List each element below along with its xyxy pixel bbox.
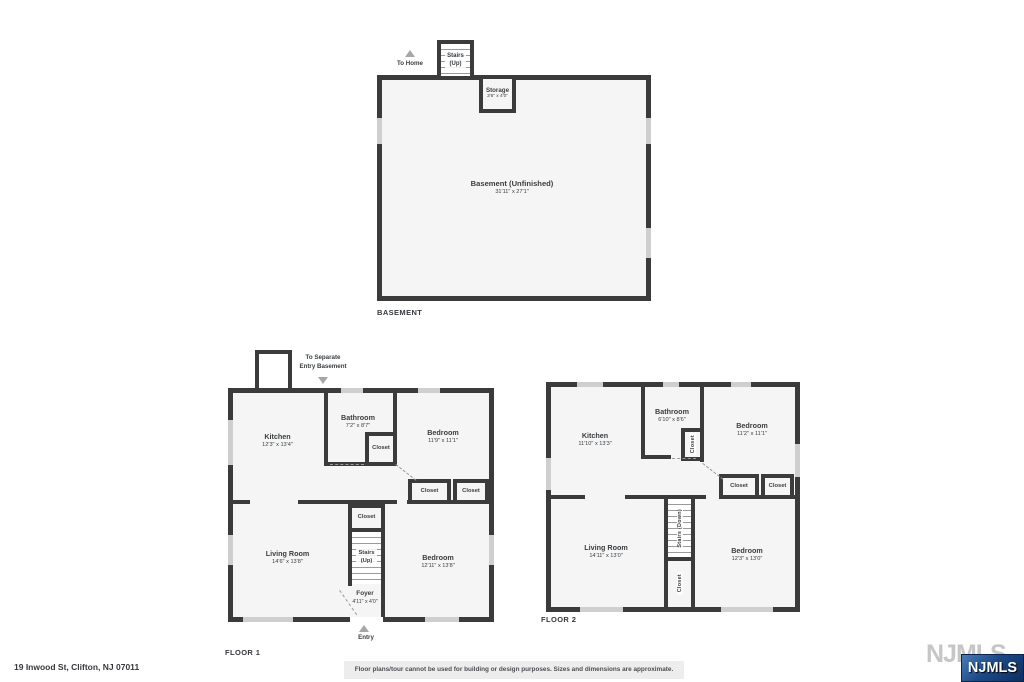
window [418, 388, 440, 393]
window [646, 228, 651, 258]
room-label-bedroom: Bedroom 11'2" x 11'1" [712, 421, 792, 438]
bedroom-dims: 11'9" x 11'1" [403, 438, 483, 445]
entry-label: Entry [344, 634, 388, 643]
closet-label: Closet [730, 484, 748, 490]
bedroom-name: Bedroom [403, 428, 483, 438]
door-opening [397, 500, 407, 504]
room-label-bedroom: Bedroom 11'9" x 11'1" [403, 428, 483, 445]
closet-box: Closet [453, 479, 489, 504]
room-label-bathroom: Bathroom 6'10" x 8'6" [637, 407, 707, 424]
window [228, 535, 233, 565]
entry-opening [350, 617, 383, 622]
window [546, 458, 551, 490]
floor1-stairs: Stairs (Up) [352, 532, 381, 584]
floorplan-page: Stairs (Up) To Home Storage 3'6" x 4'0" … [0, 0, 1024, 682]
living-room-dims: 14'11" x 13'0" [563, 553, 649, 560]
room-label-kitchen: Kitchen 11'10" x 13'3" [557, 431, 633, 448]
bedroom-dims: 12'11" x 13'8" [393, 563, 483, 570]
door-opening [706, 495, 720, 499]
window [228, 420, 233, 465]
window [489, 535, 494, 565]
basement-title: BASEMENT [377, 308, 422, 317]
bedroom-dims: 11'2" x 11'1" [712, 431, 792, 438]
floor1-title: FLOOR 1 [225, 648, 260, 657]
bedroom-name: Bedroom [712, 421, 792, 431]
door-swing [330, 464, 364, 465]
window [377, 118, 382, 144]
closet-label: Closet [769, 484, 787, 490]
to-home-arrow-icon [405, 50, 415, 57]
window [341, 388, 363, 393]
disclaimer-text: Floor plans/tour cannot be used for buil… [344, 661, 684, 679]
bathroom-dims: 7'2" x 8'7" [323, 423, 393, 430]
window [580, 607, 623, 612]
floor2-stairs: Stairs (Down) [668, 499, 691, 557]
foyer-dims: 4'11" x 4'0" [335, 599, 395, 606]
living-room-name: Living Room [563, 543, 649, 553]
closet-box: Closet [408, 479, 451, 504]
bedroom-dims: 12'3" x 13'0" [702, 556, 792, 563]
living-room-name: Living Room [245, 549, 330, 559]
room-label-basement: Basement (Unfinished) 31'11" x 27'1" [432, 179, 592, 197]
closet-box: Closet [681, 428, 704, 461]
window [577, 382, 603, 387]
wall [691, 495, 695, 607]
room-label-foyer: Foyer 4'11" x 4'0" [335, 590, 395, 605]
room-label-bathroom: Bathroom 7'2" x 8'7" [323, 413, 393, 430]
storage-dims: 3'6" x 4'0" [487, 95, 508, 100]
closet-label: Closet [358, 515, 376, 521]
window [795, 444, 800, 477]
door-swing [672, 458, 696, 459]
closet-label: Closet [421, 489, 439, 495]
window [425, 617, 459, 622]
window [731, 382, 751, 387]
basement-stairs-label: Stairs (Up) [445, 51, 466, 69]
bathroom-name: Bathroom [323, 413, 393, 423]
to-home-label: To Home [388, 60, 432, 69]
kitchen-name: Kitchen [557, 431, 633, 441]
closet-box: Closet [719, 474, 759, 499]
floor1-stairs-label: Stairs (Up) [356, 549, 376, 567]
bedroom-name: Bedroom [702, 546, 792, 556]
wall [641, 455, 671, 459]
closet-box: Closet [348, 504, 385, 532]
room-label-kitchen: Kitchen 12'3" x 13'4" [240, 432, 315, 449]
kitchen-dims: 11'10" x 13'3" [557, 441, 633, 448]
bathroom-name: Bathroom [637, 407, 707, 417]
kitchen-name: Kitchen [240, 432, 315, 442]
storage-room: Storage 3'6" x 4'0" [479, 75, 516, 113]
room-label-bedroom: Bedroom 12'3" x 13'0" [702, 546, 792, 563]
closet-box: Closet [761, 474, 794, 499]
basement-room-name: Basement (Unfinished) [432, 179, 592, 189]
living-room-dims: 14'6" x 13'8" [245, 559, 330, 566]
closet-box: Closet [365, 432, 397, 466]
bathroom-dims: 6'10" x 8'6" [637, 417, 707, 424]
closet-label: Closet [372, 446, 390, 452]
window [663, 382, 679, 387]
floor2-stairs-label: Stairs (Down) [677, 507, 683, 550]
separate-entry-arrow-icon [318, 377, 328, 384]
basement-room-dims: 31'11" x 27'1" [432, 189, 592, 196]
room-label-living-room: Living Room 14'11" x 13'0" [563, 543, 649, 560]
bedroom-name: Bedroom [393, 553, 483, 563]
closet-label: Closet [677, 572, 683, 594]
kitchen-dims: 12'3" x 13'4" [240, 442, 315, 449]
window [646, 118, 651, 144]
window [243, 617, 293, 622]
room-label-living-room: Living Room 14'6" x 13'8" [245, 549, 330, 566]
separate-entry-label: To Separate Entry Basement [275, 354, 371, 371]
room-label-bedroom: Bedroom 12'11" x 13'8" [393, 553, 483, 570]
floor2-title: FLOOR 2 [541, 615, 576, 624]
door-opening [250, 500, 298, 504]
njmls-logo: NJMLS [961, 654, 1024, 682]
foyer-name: Foyer [335, 590, 395, 599]
property-address: 19 Inwood St, Clifton, NJ 07011 [14, 662, 139, 672]
closet-label: Closet [462, 489, 480, 495]
window [721, 607, 773, 612]
entry-arrow-icon [359, 625, 369, 632]
closet-box: Closet [668, 561, 691, 605]
closet-label: Closet [690, 433, 696, 455]
door-opening [585, 495, 625, 499]
basement-stairs: Stairs (Up) [437, 40, 474, 80]
